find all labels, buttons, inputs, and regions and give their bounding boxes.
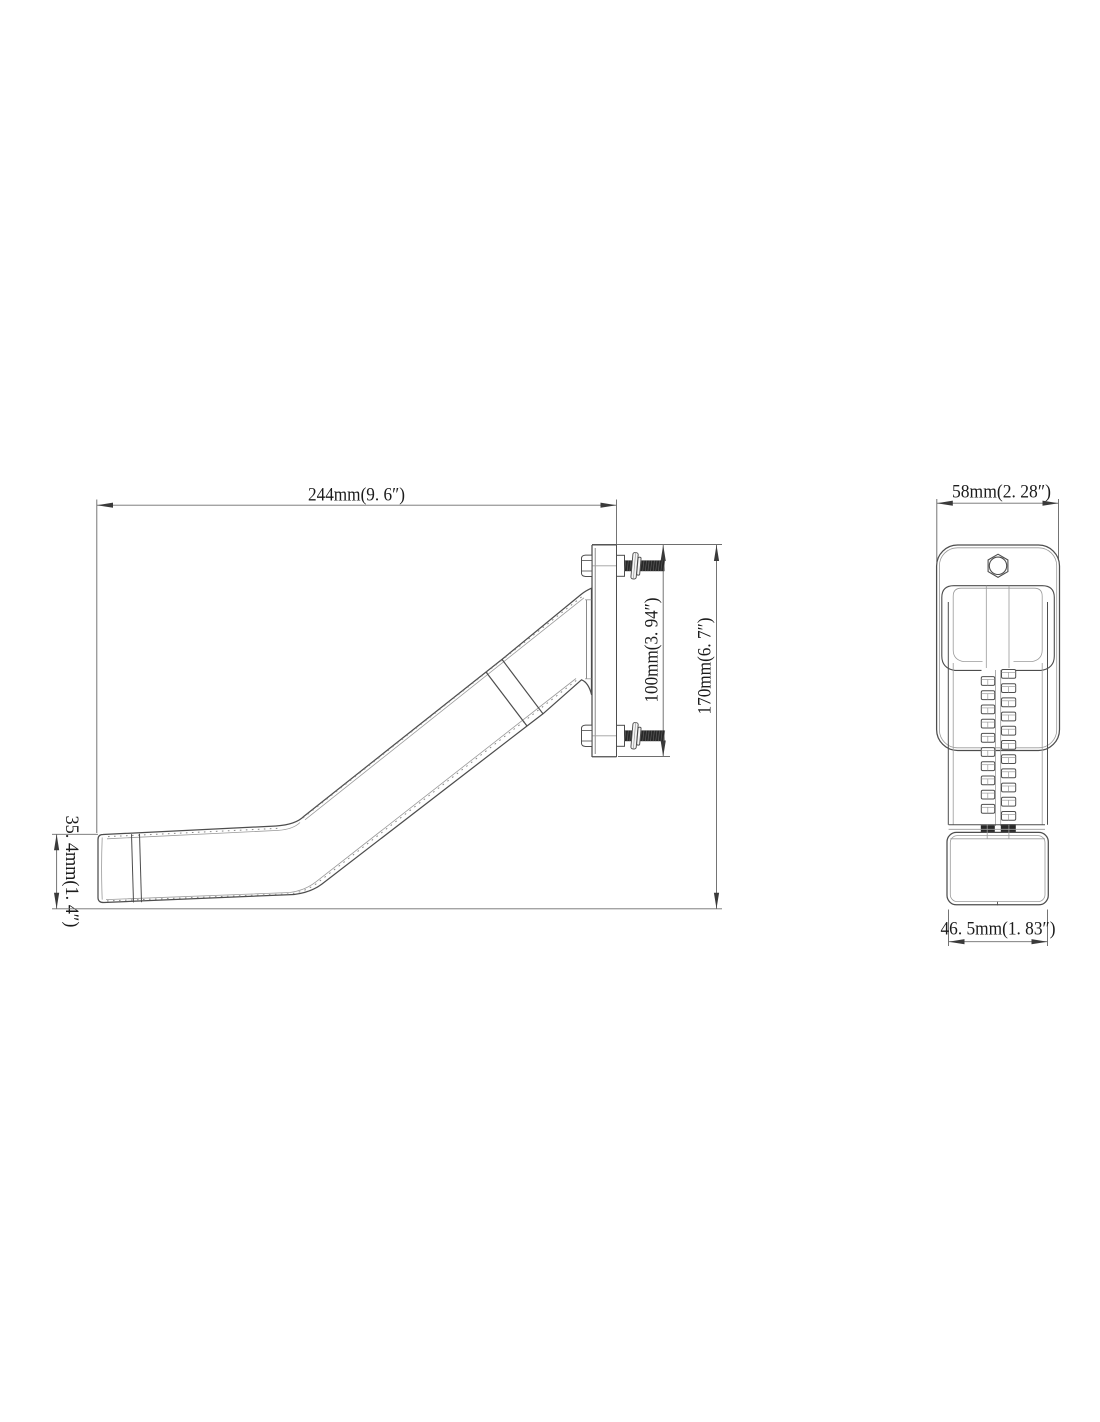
svg-text:100mm(3. 94″): 100mm(3. 94″) [642, 598, 663, 703]
svg-text:170mm(6. 7″): 170mm(6. 7″) [695, 618, 716, 715]
svg-text:58mm(2. 28″): 58mm(2. 28″) [952, 482, 1051, 503]
svg-text:35. 4mm(1. 4″): 35. 4mm(1. 4″) [61, 816, 82, 928]
svg-text:46. 5mm(1. 83″): 46. 5mm(1. 83″) [941, 919, 1056, 940]
svg-text:244mm(9. 6″): 244mm(9. 6″) [308, 484, 405, 505]
